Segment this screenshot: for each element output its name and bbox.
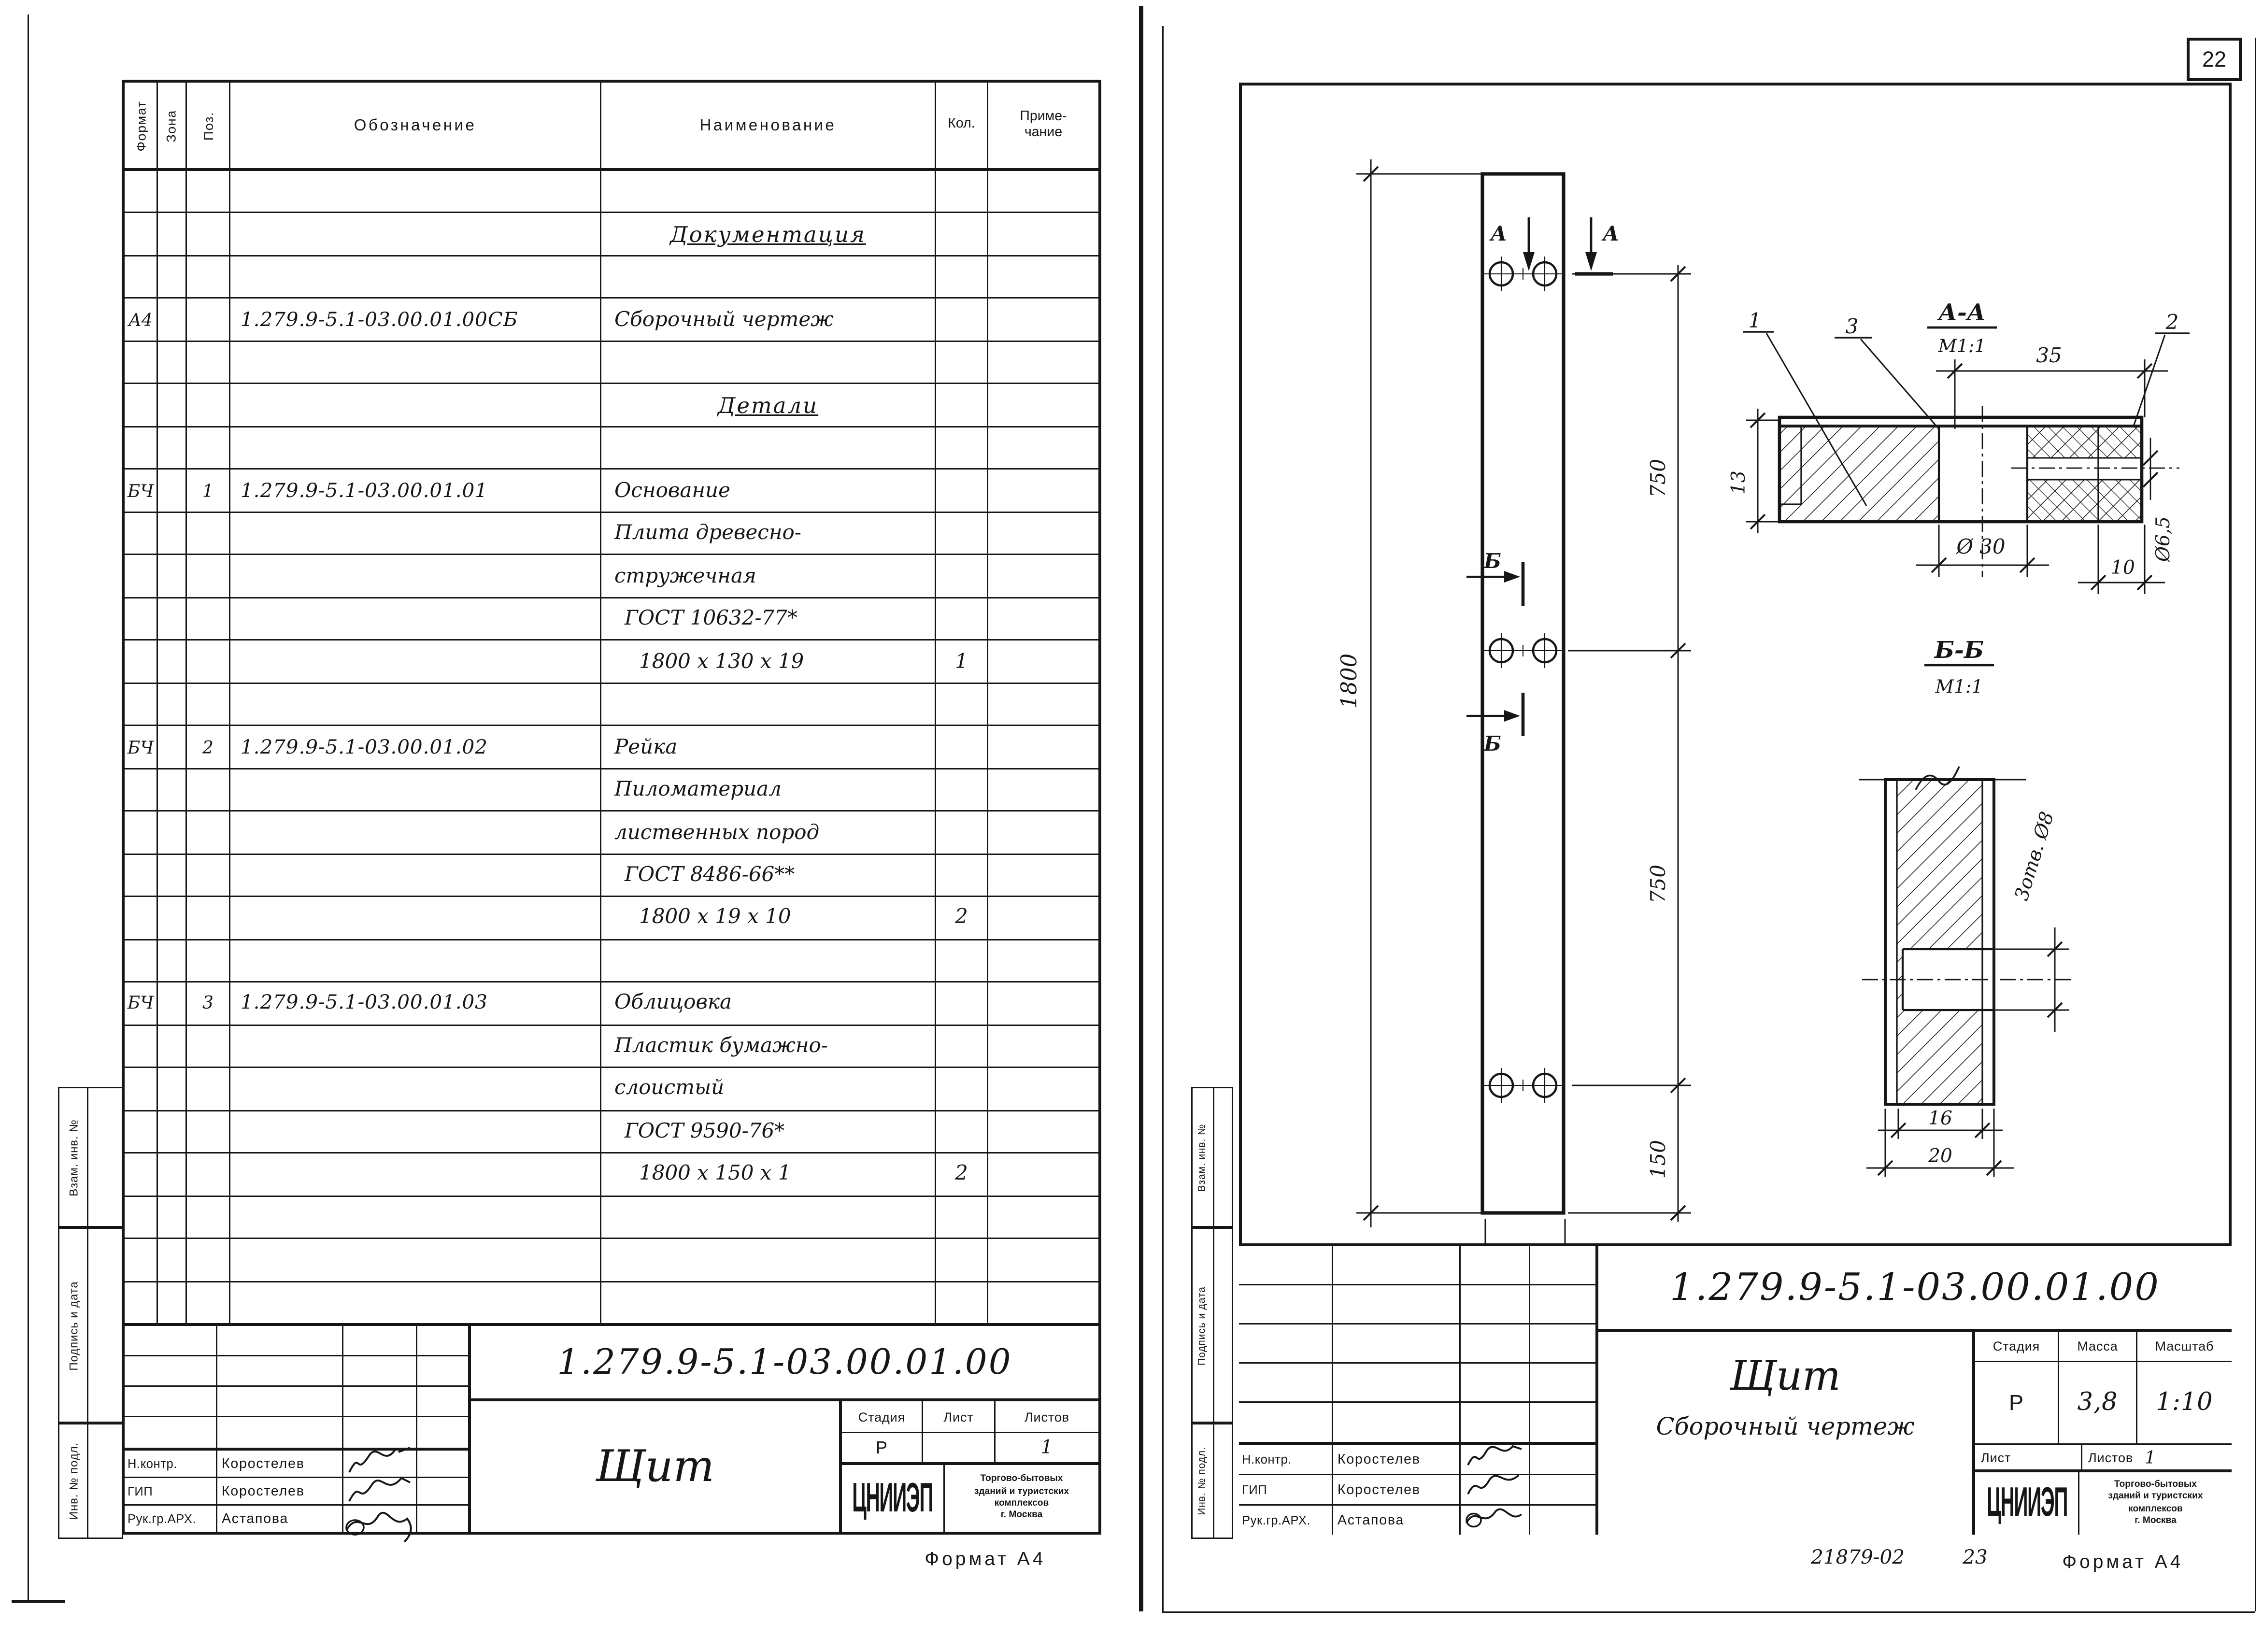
role-name: Коростелев [1333, 1475, 1461, 1506]
dim-750-top: 750 [1646, 459, 1670, 498]
assembly-drawing: 1800 750 750 150 150 А А Б Б [1239, 83, 2232, 1243]
col-format-header: Формат [133, 100, 148, 151]
spec-row: слоистый [125, 1068, 1098, 1111]
col-zone-header: Зона [165, 109, 179, 142]
signatures-left [341, 1446, 427, 1542]
center-divider [1139, 6, 1143, 1611]
mass-value: 3,8 [2059, 1362, 2137, 1443]
dim-20: 20 [1928, 1145, 1952, 1167]
stamp-inv-podl-right: Инв. № подл. [1191, 1423, 1233, 1539]
spec-row [125, 940, 1098, 983]
right-sheet-right-edge [2255, 38, 2256, 1611]
scanned-drawing-sheets: Формат Зона Поз. Обозначение Наименовани… [0, 0, 2263, 1652]
spec-row: А41.279.9-5.1-03.00.01.00СБСборочный чер… [125, 299, 1098, 342]
dim-6-5: Ø6,5 [2152, 516, 2174, 562]
org-description: Торгово-бытовых зданий и туристских комп… [2079, 1472, 2232, 1535]
col-name-header: Наименование [601, 83, 936, 168]
stamp-podpis-data: Подпись и дата [58, 1227, 123, 1423]
sheets-value: 1 [996, 1433, 1098, 1462]
spec-row: 1800 x 150 x 12 [125, 1154, 1098, 1196]
spec-row: Плита древесно- [125, 513, 1098, 555]
role-label: Н.контр. [125, 1451, 217, 1478]
spec-row: лиственных пород [125, 812, 1098, 854]
label-a-right: А [1601, 222, 1619, 245]
right-designation: 1.279.9-5.1-03.00.01.00 [1670, 1266, 2160, 1310]
dim-30: Ø 30 [1956, 535, 2005, 558]
sheet-value [923, 1433, 996, 1462]
dim-150-right: 150 [1646, 1140, 1670, 1179]
col-qty-header: Кол. [936, 83, 988, 168]
spec-table: Формат Зона Поз. Обозначение Наименовани… [122, 80, 1101, 1535]
stamp-inv-podl: Инв. № подл. [58, 1423, 123, 1539]
left-designation: 1.279.9-5.1-03.00.01.00 [557, 1342, 1012, 1382]
spec-row: Детали [125, 385, 1098, 427]
hole-centerlines [1484, 256, 1562, 1103]
spec-row [125, 1282, 1098, 1323]
col-note-header: Приме-чание [1020, 110, 1067, 142]
spec-row: ГОСТ 9590-76* [125, 1111, 1098, 1154]
panel-holes [1490, 262, 1556, 1097]
section-bb [1859, 665, 2072, 1177]
left-doc-name: Щит [596, 1441, 714, 1492]
dim-35: 35 [2036, 343, 2062, 367]
section-aa-scale: М1:1 [1938, 335, 1986, 356]
spec-row: 1800 x 19 x 102 [125, 897, 1098, 940]
left-sheet-bottom-dash [12, 1600, 65, 1602]
right-sheet-bottom-edge [1162, 1611, 2255, 1613]
role-label: Рук.гр.АРХ. [1239, 1506, 1333, 1535]
section-bb-scale: М1:1 [1935, 676, 1983, 697]
spec-row: стружечная [125, 555, 1098, 598]
stamp-vzam-inv: Взам. инв. № [58, 1087, 123, 1227]
org-logo: ЦНИИЭП [853, 1475, 933, 1522]
left-title-block: Н.контр. Коростелев ГИП Коростелев Рук.г… [125, 1323, 1098, 1532]
page-number-box: 22 [2187, 38, 2242, 81]
dim-750-mid: 750 [1646, 865, 1670, 903]
sheets-label: Листов [2088, 1450, 2133, 1465]
role-name: Коростелев [217, 1451, 343, 1478]
leader-3: 3 [1846, 314, 1859, 338]
dim-10: 10 [2111, 557, 2135, 579]
spec-row: 1800 x 130 x 191 [125, 641, 1098, 684]
role-name: Коростелев [217, 1478, 343, 1506]
leader-2: 2 [2165, 310, 2179, 334]
section-bb-title: Б-Б [1934, 637, 1984, 664]
spec-row [125, 1196, 1098, 1239]
front-view [1356, 159, 1691, 1243]
spec-row [125, 171, 1098, 214]
right-doc-name: Щит [1598, 1352, 1972, 1400]
col-designation-header: Обозначение [230, 83, 601, 168]
stage-label: Стадия [1975, 1332, 2059, 1361]
spec-table-header: Формат Зона Поз. Обозначение Наименовани… [125, 83, 1098, 171]
spec-rows: ДокументацияА41.279.9-5.1-03.00.01.00СБС… [125, 171, 1098, 1323]
stage-value: Р [1975, 1362, 2059, 1443]
spec-row: БЧ31.279.9-5.1-03.00.01.03Облицовка [125, 983, 1098, 1025]
sheet-label: Лист [1975, 1445, 2082, 1469]
spec-row: ГОСТ 10632-77* [125, 598, 1098, 641]
spec-row [125, 684, 1098, 726]
doc-number: 21879-02 [1779, 1545, 1936, 1571]
spec-row: БЧ21.279.9-5.1-03.00.01.02Рейка [125, 726, 1098, 769]
right-sheet-left-edge [1162, 26, 1164, 1611]
scale-value: 1:10 [2137, 1362, 2232, 1443]
spec-row: ГОСТ 8486-66** [125, 854, 1098, 897]
mass-label: Масса [2059, 1332, 2137, 1361]
dim-16: 16 [1928, 1108, 1952, 1129]
format-note-left: Формат А4 [869, 1545, 1101, 1571]
section-b-marks [1466, 562, 1523, 736]
right-doc-subtitle: Сборочный чертеж [1598, 1413, 1972, 1440]
role-name: Астапова [217, 1506, 343, 1532]
stamp-podpis-data-right: Подпись и дата [1191, 1227, 1233, 1423]
dim-13: 13 [1728, 470, 1750, 495]
label-b-upper: Б [1483, 549, 1501, 573]
role-label: Н.контр. [1239, 1445, 1333, 1475]
role-name: Коростелев [1333, 1445, 1461, 1475]
spec-row: Документация [125, 214, 1098, 256]
right-title-block: Н.контр. Коростелев ГИП Коростелев Рук.г… [1239, 1243, 2232, 1535]
holes-note: 3отв. Ø8 [2011, 809, 2058, 903]
org-description: Торгово-бытовых зданий и туристских комп… [945, 1465, 1098, 1532]
leader-1: 1 [1749, 309, 1762, 332]
stamp-vzam-inv-right: Взам. инв. № [1191, 1087, 1233, 1227]
sheets-label: Листов [996, 1401, 1098, 1432]
sheet-label: Лист [923, 1401, 996, 1432]
sheets-value: 1 [2145, 1447, 2156, 1467]
spec-row [125, 1239, 1098, 1282]
spec-row: Пиломатериал [125, 769, 1098, 812]
spec-row [125, 342, 1098, 385]
role-label: ГИП [1239, 1475, 1333, 1506]
right-title-block-mini-grid: Н.контр. Коростелев ГИП Коростелев Рук.г… [1239, 1246, 1598, 1535]
role-label: ГИП [125, 1478, 217, 1506]
signatures-right [1461, 1442, 1530, 1535]
format-note-right: Формат А4 [2029, 1548, 2217, 1574]
org-logo: ЦНИИЭП [1986, 1480, 2067, 1527]
dim-1800: 1800 [1336, 654, 1362, 709]
section-aa-title: А-А [1937, 299, 1986, 326]
spec-row [125, 427, 1098, 470]
stage-label: Стадия [842, 1401, 923, 1432]
left-sheet-edge [28, 14, 29, 1601]
spec-row: БЧ11.279.9-5.1-03.00.01.01Основание [125, 470, 1098, 513]
footer-sheet-number: 23 [1950, 1545, 2000, 1571]
spec-row: Пластик бумажно- [125, 1025, 1098, 1068]
spec-row [125, 256, 1098, 299]
label-a-left: А [1489, 222, 1507, 245]
label-b-lower: Б [1483, 732, 1501, 755]
stage-value: Р [842, 1433, 923, 1462]
scale-label: Масштаб [2137, 1332, 2232, 1361]
role-name: Астапова [1333, 1506, 1461, 1535]
role-label: Рук.гр.АРХ. [125, 1506, 217, 1532]
col-pos-header: Поз. [201, 111, 215, 140]
